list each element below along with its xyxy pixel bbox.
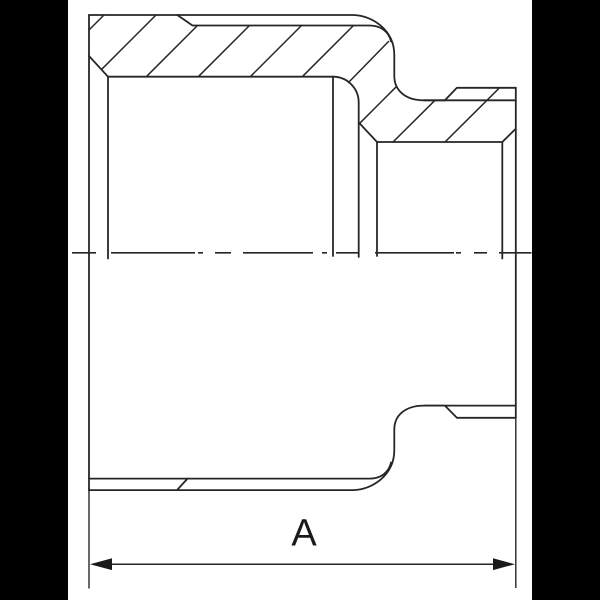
svg-text:A: A <box>291 513 317 555</box>
